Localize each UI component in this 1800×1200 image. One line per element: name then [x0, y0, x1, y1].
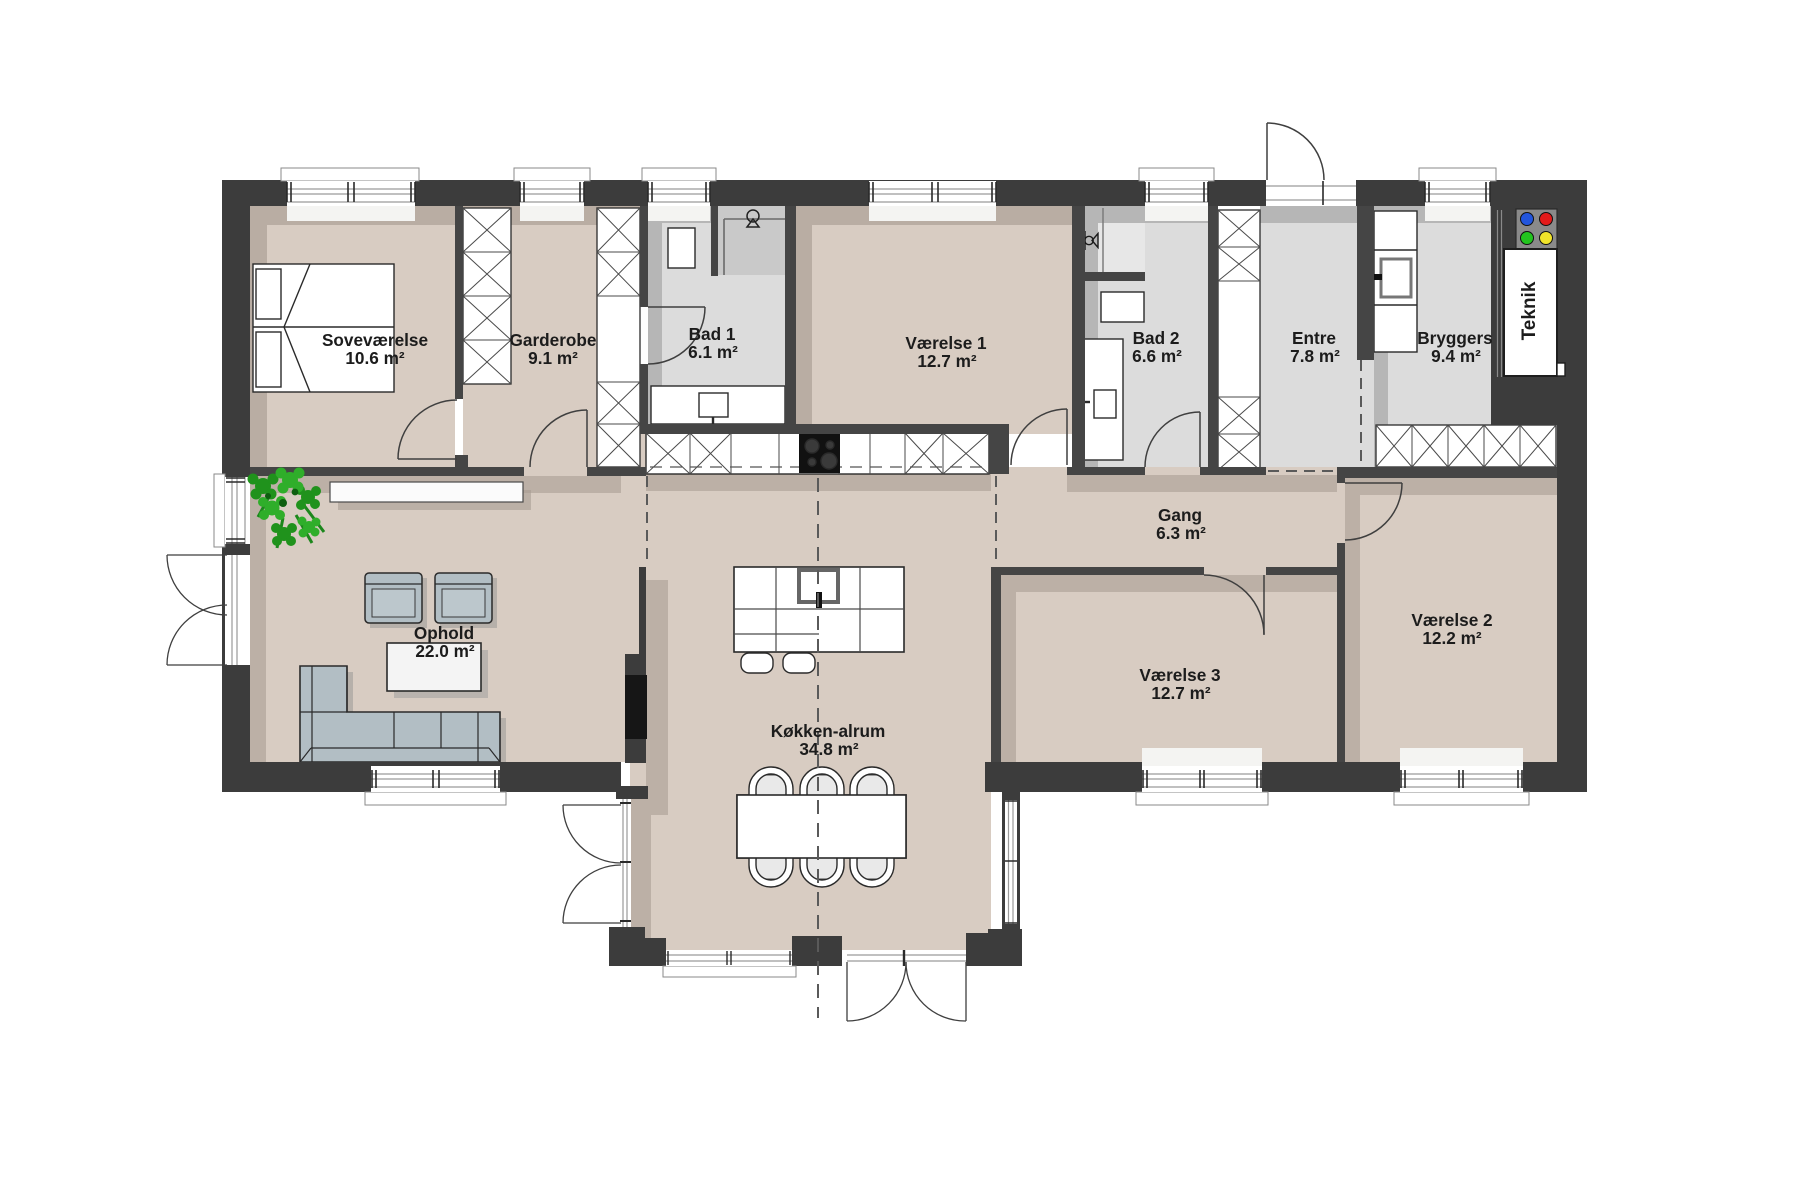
svg-text:12.2 m²: 12.2 m²: [1422, 628, 1482, 648]
svg-text:Teknik: Teknik: [1519, 281, 1540, 340]
svg-text:22.0 m²: 22.0 m²: [415, 641, 475, 661]
svg-text:Gang: Gang: [1158, 505, 1202, 525]
svg-text:10.6 m²: 10.6 m²: [345, 348, 405, 368]
svg-text:9.4 m²: 9.4 m²: [1431, 346, 1481, 366]
svg-text:Entre: Entre: [1292, 328, 1336, 348]
svg-text:6.1 m²: 6.1 m²: [688, 342, 738, 362]
svg-text:Værelse 3: Værelse 3: [1139, 665, 1220, 685]
svg-text:Bad 1: Bad 1: [689, 324, 736, 344]
svg-text:12.7 m²: 12.7 m²: [1151, 683, 1211, 703]
svg-text:12.7 m²: 12.7 m²: [917, 351, 977, 371]
svg-text:7.8 m²: 7.8 m²: [1290, 346, 1340, 366]
svg-text:Bryggers: Bryggers: [1417, 328, 1492, 348]
svg-text:Soveværelse: Soveværelse: [322, 330, 428, 350]
svg-text:6.3 m²: 6.3 m²: [1156, 523, 1206, 543]
svg-text:Køkken-alrum: Køkken-alrum: [771, 721, 886, 741]
svg-text:9.1 m²: 9.1 m²: [528, 348, 578, 368]
svg-text:Værelse 2: Værelse 2: [1411, 610, 1492, 630]
svg-text:34.8 m²: 34.8 m²: [799, 739, 859, 759]
svg-text:Ophold: Ophold: [414, 623, 474, 643]
svg-text:Værelse 1: Værelse 1: [905, 333, 987, 353]
svg-text:Bad 2: Bad 2: [1133, 328, 1180, 348]
svg-text:6.6 m²: 6.6 m²: [1132, 346, 1182, 366]
svg-text:Garderobe: Garderobe: [510, 330, 597, 350]
